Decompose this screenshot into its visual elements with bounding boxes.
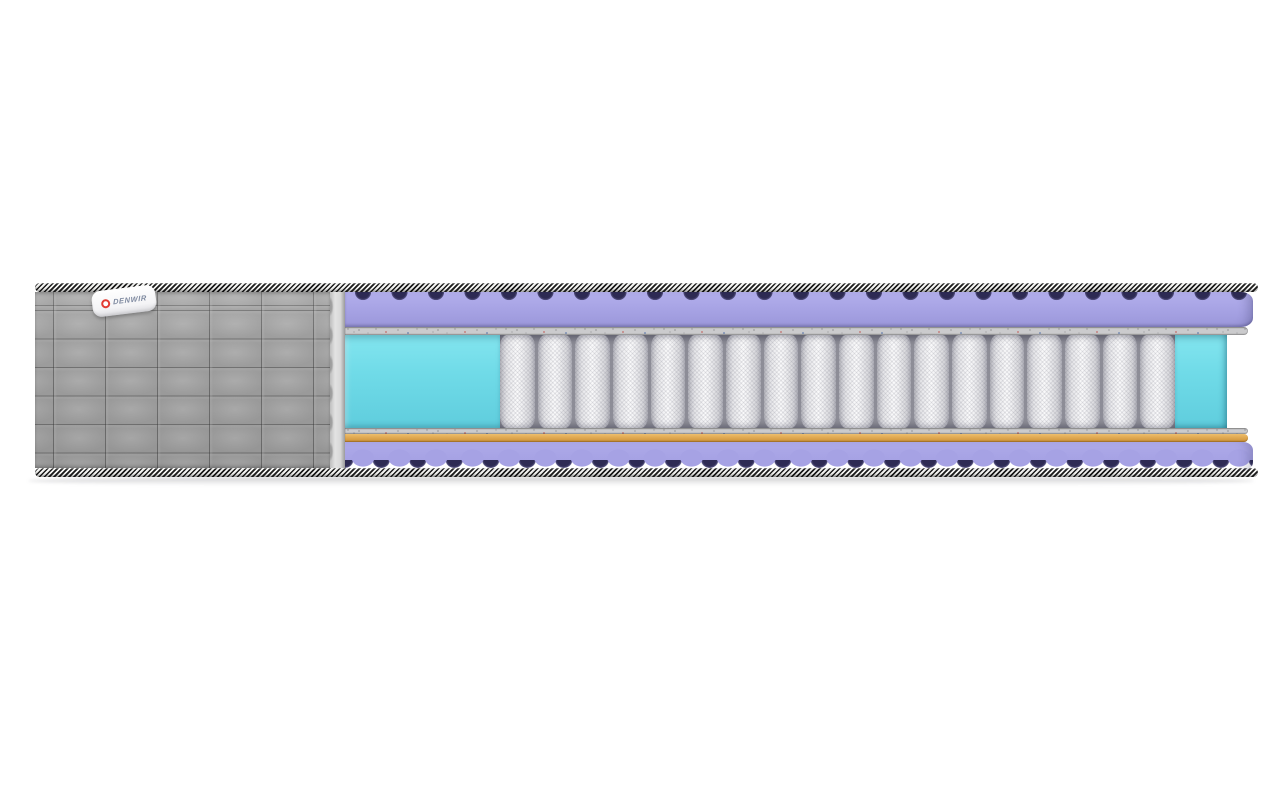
cover-cut-face [330,292,345,468]
pocket-spring [726,335,761,428]
wave-foam-bottom-layer [345,442,1253,472]
pocket-spring [839,335,874,428]
edge-support-foam-left [345,335,500,428]
pocket-spring [877,335,912,428]
pocket-spring [801,335,836,428]
floor-shadow [28,477,1254,486]
pocket-springs [500,335,1175,428]
edge-support-foam-right [1175,335,1227,428]
coir-sheet-layer [345,434,1248,442]
mattress-product-photo: DENWIR [0,0,1280,800]
pocket-spring [651,335,686,428]
pocket-spring [764,335,799,428]
pocket-spring [1103,335,1138,428]
brand-logo-icon [101,298,111,308]
quilted-cover [35,292,330,468]
pocket-spring [990,335,1025,428]
pocket-spring [538,335,573,428]
mattress-cutaway: DENWIR [35,283,1258,477]
pocket-spring [613,335,648,428]
felt-pad-top [345,327,1248,335]
pocket-spring [1065,335,1100,428]
braid-piping-top [35,283,1258,292]
pocket-spring [688,335,723,428]
pocket-spring [952,335,987,428]
pocket-spring [1027,335,1062,428]
pocket-spring [575,335,610,428]
pocket-spring [500,335,535,428]
pocket-spring [1140,335,1175,428]
brand-label-text: DENWIR [113,294,147,306]
pocket-spring [914,335,949,428]
wave-foam-top-layer [345,292,1253,327]
